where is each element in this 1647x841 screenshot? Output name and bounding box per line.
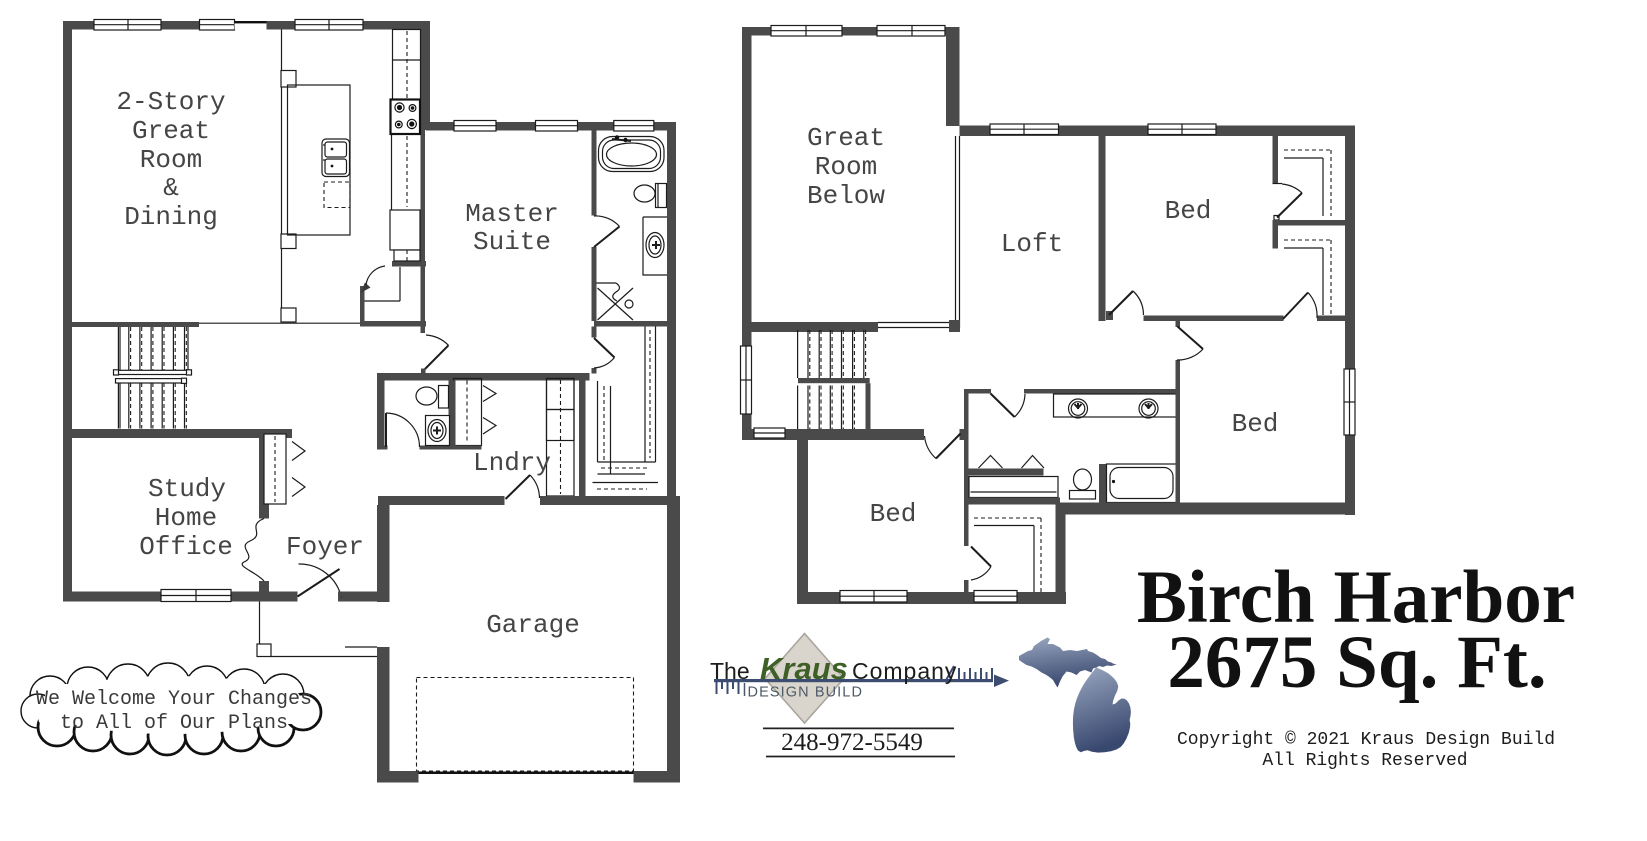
svg-text:Study: Study (148, 474, 226, 504)
svg-text:Copyright © 2021 Kraus Design: Copyright © 2021 Kraus Design Build (1177, 730, 1555, 750)
svg-text:DESIGN BUILD: DESIGN BUILD (748, 685, 864, 701)
svg-text:Room: Room (140, 145, 202, 175)
svg-text:We Welcome Your Changes: We Welcome Your Changes (36, 688, 312, 711)
svg-text:to All of Our Plans: to All of Our Plans (60, 712, 288, 735)
svg-text:Office: Office (139, 532, 233, 562)
svg-text:Lndry: Lndry (473, 448, 551, 478)
svg-text:2675 Sq. Ft.: 2675 Sq. Ft. (1167, 621, 1546, 704)
svg-text:Room: Room (815, 152, 877, 182)
svg-text:Great: Great (132, 116, 210, 146)
svg-text:Foyer: Foyer (286, 532, 364, 562)
svg-text:The: The (710, 658, 750, 684)
svg-text:All Rights Reserved: All Rights Reserved (1262, 751, 1467, 771)
svg-text:Kraus: Kraus (760, 651, 848, 686)
svg-text:Loft: Loft (1001, 229, 1063, 259)
svg-text:Bed: Bed (870, 499, 917, 529)
svg-text:Master: Master (465, 199, 559, 229)
svg-text:Garage: Garage (486, 610, 580, 640)
svg-text:2-Story: 2-Story (116, 87, 225, 117)
svg-text:&: & (163, 173, 179, 203)
svg-text:Bed: Bed (1165, 196, 1212, 226)
svg-text:Dining: Dining (124, 202, 218, 232)
svg-text:Company: Company (852, 658, 957, 684)
svg-text:Great: Great (807, 123, 885, 153)
svg-text:Bed: Bed (1232, 409, 1279, 439)
svg-text:Suite: Suite (473, 227, 551, 257)
svg-text:Home: Home (155, 503, 217, 533)
svg-text:248-972-5549: 248-972-5549 (781, 729, 923, 756)
svg-text:Below: Below (807, 181, 885, 211)
